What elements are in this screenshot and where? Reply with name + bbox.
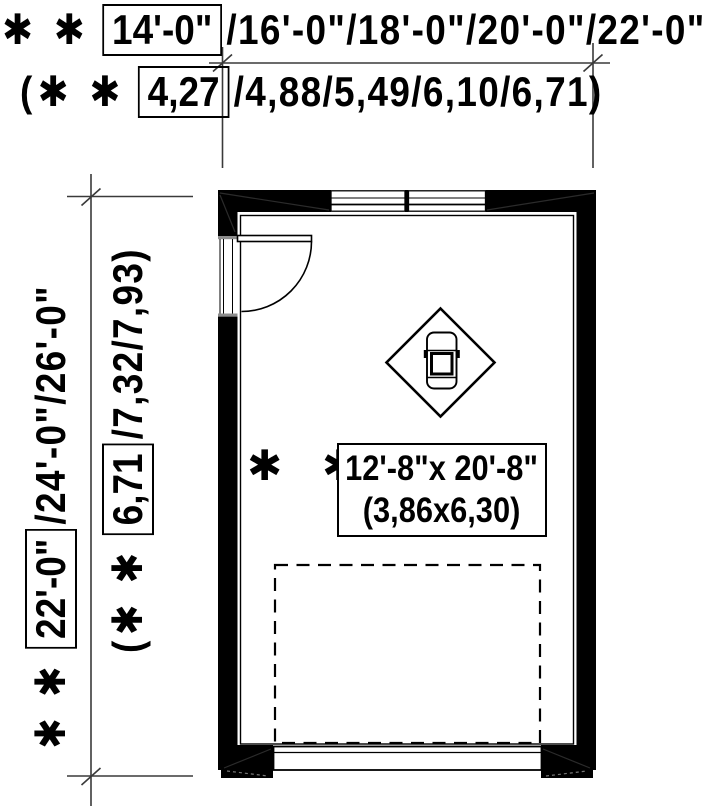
room-size-metric: (3,86x6,30)	[346, 490, 539, 532]
asterisks: ✱ ✱	[2, 7, 90, 53]
car-top-view-icon	[424, 333, 460, 389]
room-size-imperial: 12'-8"x 20'-8"	[346, 448, 539, 490]
asterisks: (✱ ✱	[105, 547, 151, 653]
boxed-depth-imperial: 22'-0"	[25, 529, 77, 649]
floor-plan-page: { "page": { "background": "#ffffff", "in…	[0, 0, 720, 806]
asterisks: ✱ ✱	[28, 661, 74, 749]
room-size-label: 12'-8"x 20'-8" (3,86x6,30)	[337, 443, 547, 537]
left-dimension-metric: (✱ ✱ 6,71 /7,32/7,93)	[102, 248, 154, 653]
left-dimension-imperial: ✱ ✱ 22'-0" /24'-0"/26'-0"	[25, 285, 77, 749]
depth-options-metric: /7,32/7,93)	[105, 248, 151, 439]
boxed-width-imperial: 14'-0"	[102, 4, 222, 56]
window-icon	[331, 191, 486, 211]
width-options-imperial: /16'-0"/18'-0"/20'-0"/22'-0"	[226, 7, 705, 53]
asterisks: (✱ ✱	[20, 69, 126, 115]
garage-door-icon	[274, 747, 542, 771]
boxed-width-metric: 4,27	[138, 66, 229, 118]
garage-door-dashed-outline	[275, 565, 540, 743]
door-swing-icon	[218, 236, 312, 317]
width-options-metric: /4,88/5,49/6,10/6,71)	[234, 69, 603, 115]
top-dimension-metric: (✱ ✱ 4,27 /4,88/5,49/6,10/6,71)	[20, 66, 603, 118]
depth-options-imperial: /24'-0"/26'-0"	[28, 285, 74, 525]
top-dimension-imperial: ✱ ✱ 14'-0" /16'-0"/18'-0"/20'-0"/22'-0"	[2, 4, 706, 56]
boxed-depth-metric: 6,71	[102, 444, 154, 535]
